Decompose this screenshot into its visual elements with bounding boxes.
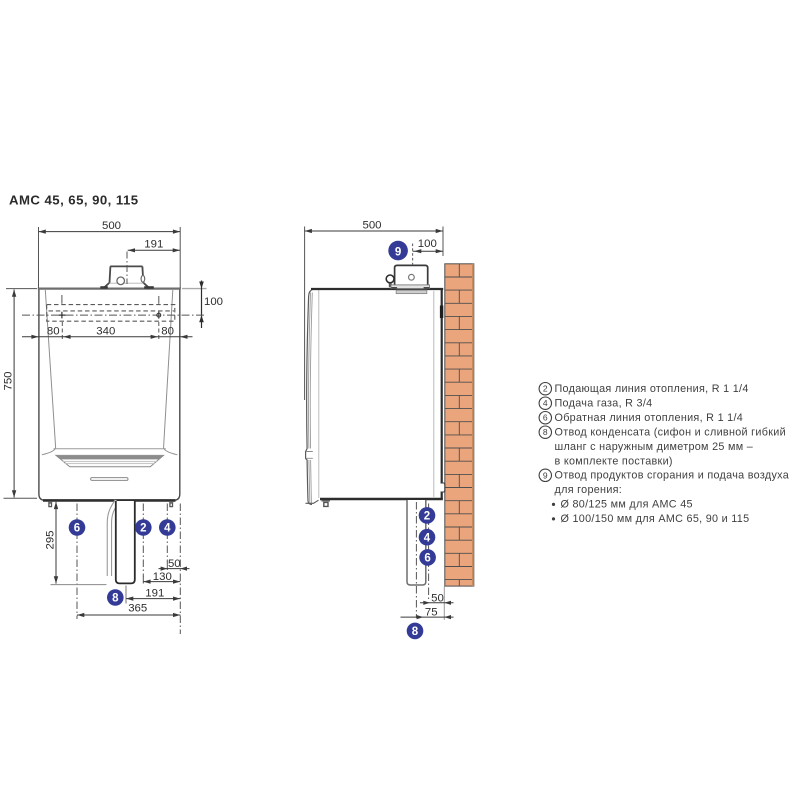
svg-text:2: 2 [140,523,146,535]
svg-text:340: 340 [96,326,115,338]
svg-text:Отвод продуктов сгорания и под: Отвод продуктов сгорания и подача воздух… [555,470,790,482]
svg-text:4: 4 [164,523,171,535]
svg-text:8: 8 [543,427,548,437]
svg-text:9: 9 [395,246,401,258]
svg-text:шланг с наружным диметром 25 м: шланг с наружным диметром 25 мм – [555,441,754,453]
svg-text:Подающая линия отопления, R 1: Подающая линия отопления, R 1 1/4 [555,383,749,395]
svg-text:8: 8 [112,593,119,605]
svg-text:Обратная линия отопления, R 1: Обратная линия отопления, R 1 1/4 [555,412,744,424]
svg-text:80: 80 [47,326,60,338]
svg-text:6: 6 [543,413,548,423]
svg-text:50: 50 [168,558,181,570]
svg-text:для горения:: для горения: [555,484,623,496]
svg-text:Отвод конденсата (сифон и слив: Отвод конденсата (сифон и сливной гибкий [555,427,786,439]
svg-text:6: 6 [424,553,430,565]
svg-text:365: 365 [128,602,147,614]
svg-text:100: 100 [418,238,437,250]
svg-text:6: 6 [74,523,80,535]
svg-text:8: 8 [412,626,419,638]
svg-text:4: 4 [543,398,548,408]
svg-text:Ø 80/125 мм для АМС 45: Ø 80/125 мм для АМС 45 [561,499,693,511]
svg-text:130: 130 [153,571,172,583]
svg-text:100: 100 [204,296,223,308]
svg-text:500: 500 [362,219,381,231]
svg-text:80: 80 [161,326,174,338]
svg-text:АМС 45, 65, 90, 115: АМС 45, 65, 90, 115 [9,193,139,208]
svg-text:750: 750 [3,371,15,390]
svg-text:50: 50 [431,592,444,604]
svg-text:2: 2 [424,511,430,523]
svg-text:Ø 100/150 мм для АМС 65, 90 и: Ø 100/150 мм для АМС 65, 90 и 115 [561,513,750,525]
svg-text:191: 191 [144,239,163,251]
svg-text:75: 75 [425,607,438,619]
svg-text:4: 4 [424,532,431,544]
svg-text:9: 9 [543,470,548,480]
svg-text:2: 2 [543,384,548,394]
svg-text:500: 500 [102,220,121,232]
svg-text:295: 295 [45,530,57,549]
svg-text:в комплекте поставки): в комплекте поставки) [555,456,673,468]
svg-text:Подача газа, R 3/4: Подача газа, R 3/4 [555,398,653,410]
svg-text:191: 191 [145,587,164,599]
